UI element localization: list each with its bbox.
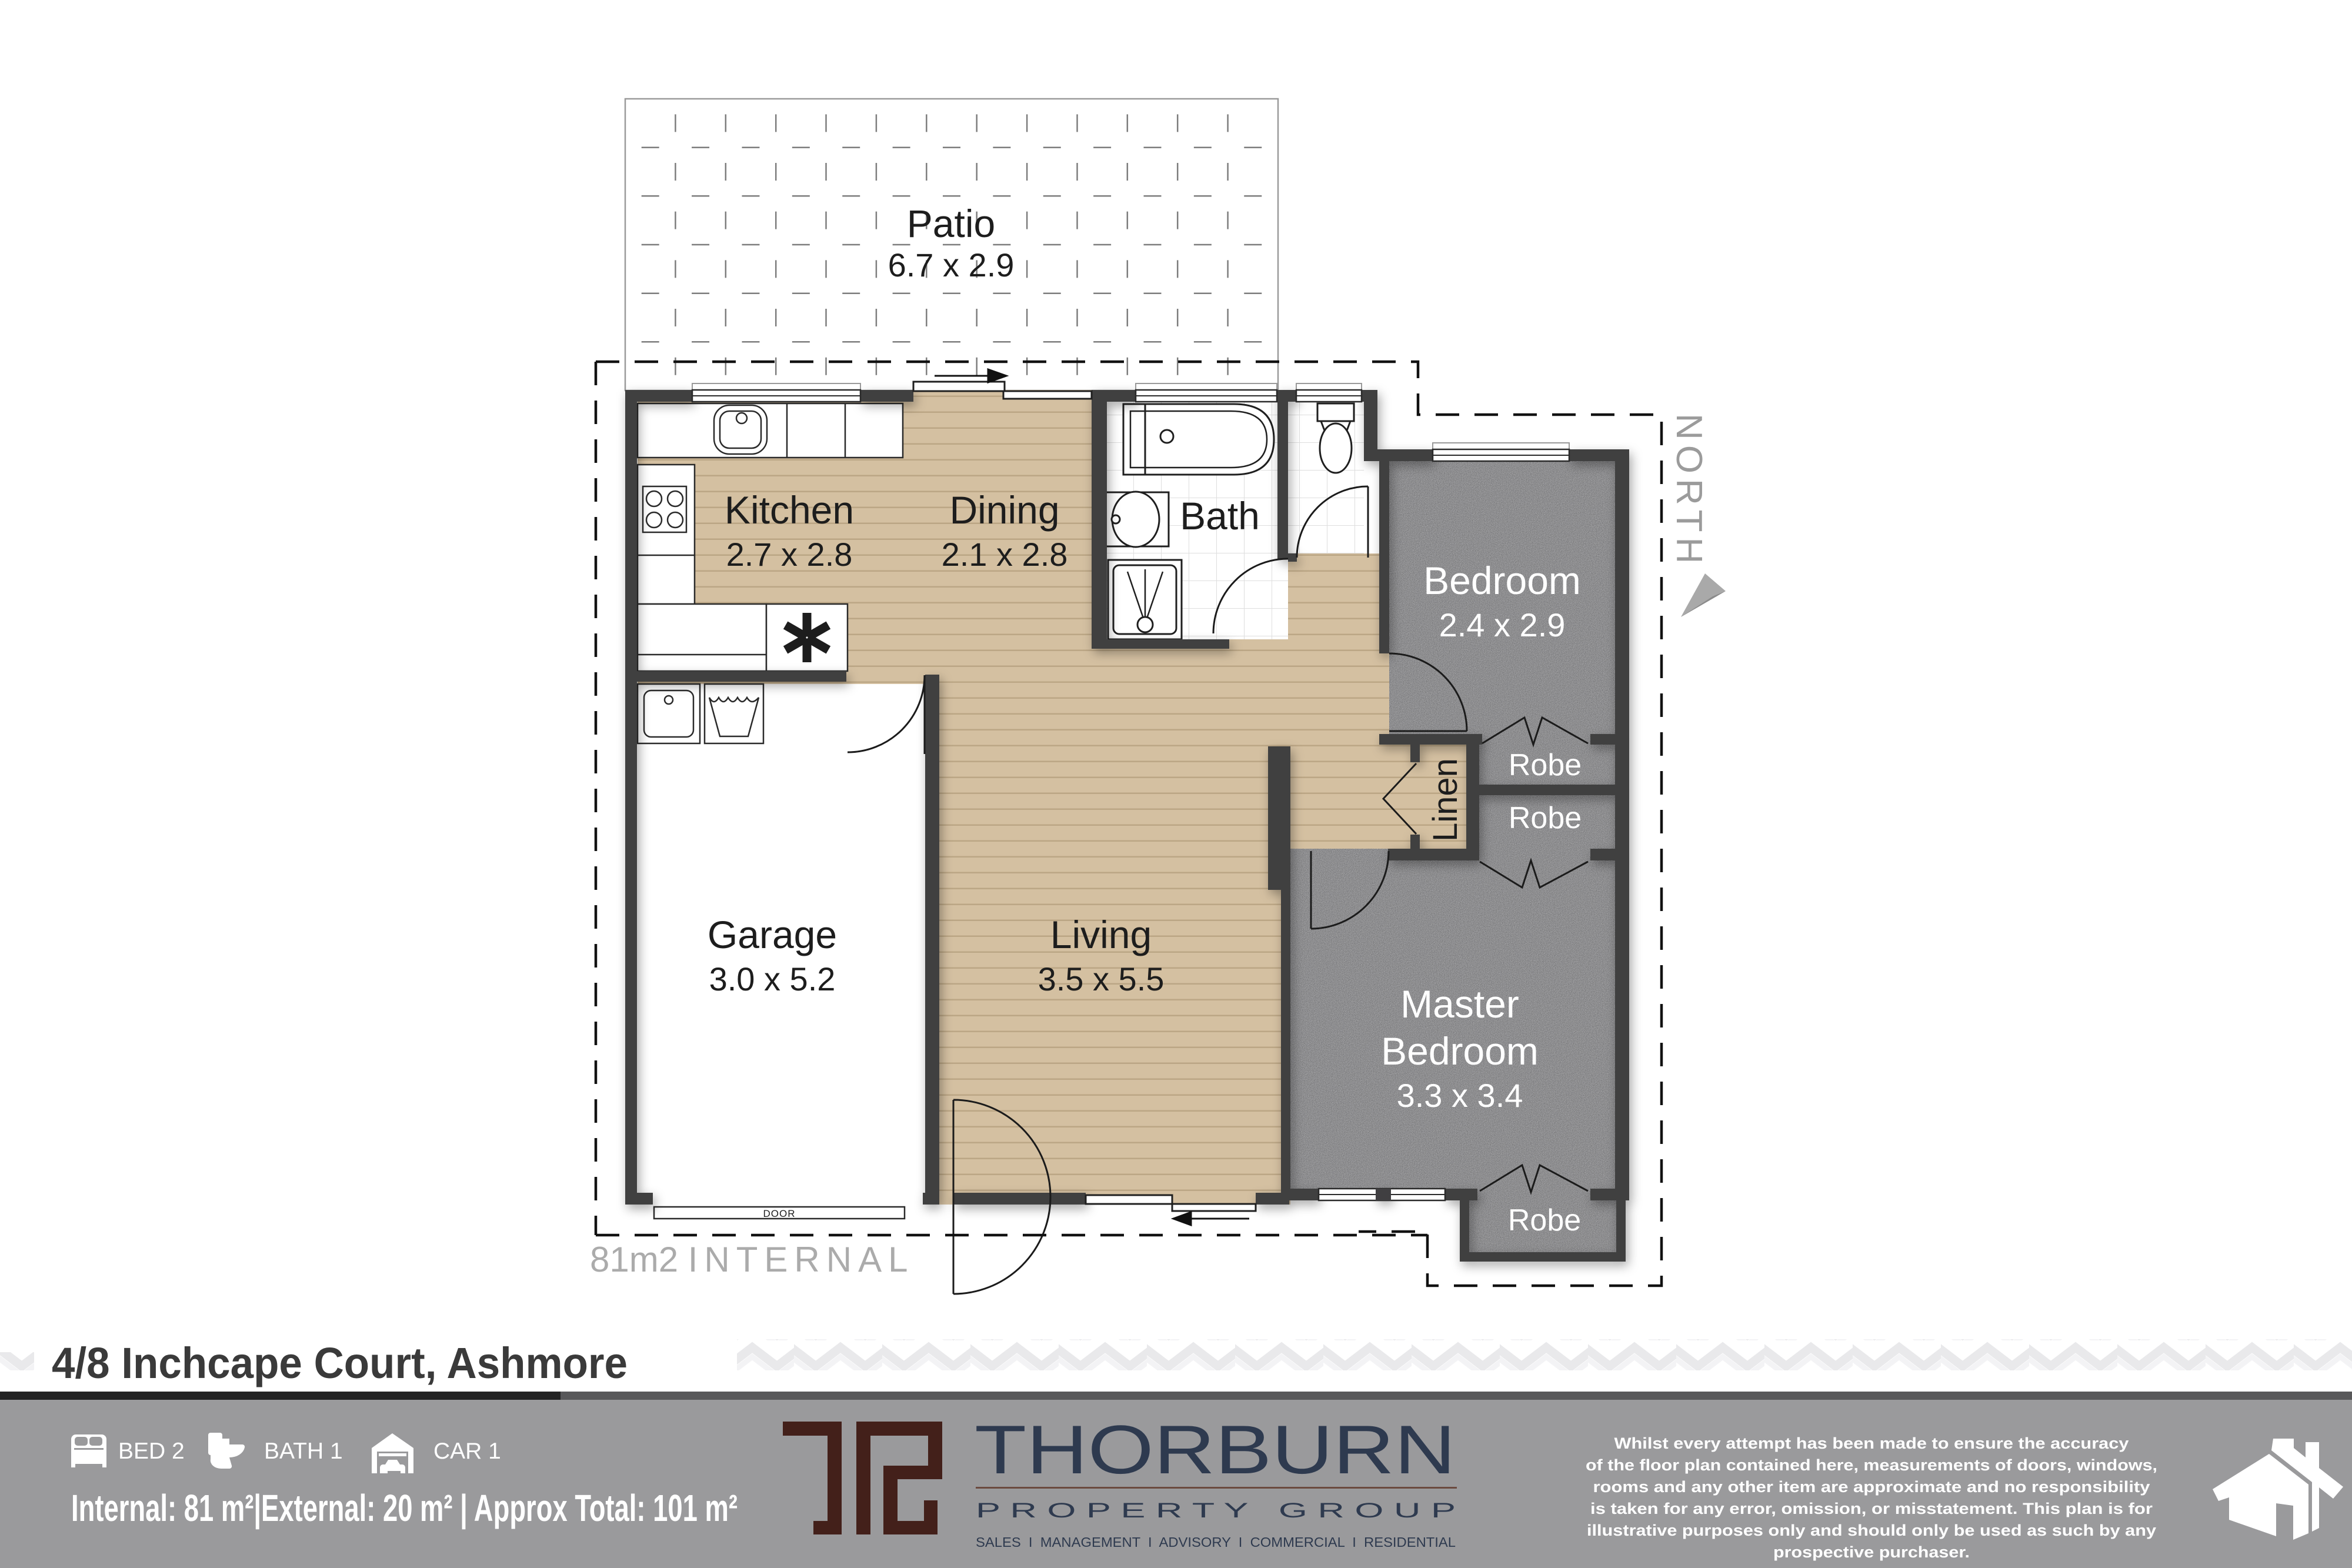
svg-text:rooms and any other item are a: rooms and any other item are approximate… — [1593, 1478, 2150, 1496]
svg-text:Linen: Linen — [1426, 758, 1464, 842]
svg-text:NORTH: NORTH — [1669, 413, 1709, 569]
svg-text:Robe: Robe — [1509, 748, 1582, 782]
svg-text:BED 2: BED 2 — [118, 1439, 185, 1464]
svg-text:THORBURN: THORBURN — [975, 1411, 1456, 1488]
svg-text:6.7 x 2.9: 6.7 x 2.9 — [888, 246, 1015, 283]
svg-text:Robe: Robe — [1509, 801, 1582, 835]
svg-text:of the floor plan contained he: of the floor plan contained here, measur… — [1586, 1456, 2157, 1474]
svg-text:3.5 x 5.5: 3.5 x 5.5 — [1038, 960, 1165, 997]
svg-text:illustrative purposes only and: illustrative purposes only and should on… — [1587, 1522, 2156, 1539]
svg-text:is taken for any error, omissi: is taken for any error, omission, or mis… — [1590, 1500, 2153, 1517]
svg-text:3.3 x 3.4: 3.3 x 3.4 — [1397, 1077, 1523, 1114]
svg-text:2.1 x 2.8: 2.1 x 2.8 — [942, 536, 1068, 573]
svg-text:Bedroom: Bedroom — [1423, 559, 1581, 602]
svg-text:Garage: Garage — [708, 913, 837, 956]
svg-text:3.0 x 5.2: 3.0 x 5.2 — [709, 960, 836, 997]
svg-text:prospective purchaser.: prospective purchaser. — [1773, 1543, 1970, 1561]
svg-text:Robe: Robe — [1508, 1203, 1581, 1237]
svg-text:Patio: Patio — [907, 202, 995, 245]
svg-text:P R O P E R T Y G R O U P: P R O P E R T Y G R O U P — [976, 1499, 1456, 1522]
svg-text:2.7 x 2.8: 2.7 x 2.8 — [726, 536, 853, 573]
svg-text:BATH 1: BATH 1 — [264, 1439, 343, 1464]
svg-text:DOOR: DOOR — [763, 1208, 796, 1219]
svg-text:SALES I MANAGEMENT I ADVIS: SALES I MANAGEMENT I ADVISORY I COMMERCI… — [976, 1534, 1456, 1550]
svg-text:2.4 x 2.9: 2.4 x 2.9 — [1439, 606, 1566, 643]
svg-text:Living: Living — [1050, 913, 1152, 956]
svg-text:81m2 INTERNAL: 81m2 INTERNAL — [590, 1240, 914, 1279]
svg-text:4/8 Inchcape Court, Ashmore: 4/8 Inchcape Court, Ashmore — [52, 1339, 628, 1387]
svg-text:Kitchen: Kitchen — [725, 488, 854, 532]
svg-text:Whilst every attempt has been: Whilst every attempt has been made to en… — [1614, 1434, 2129, 1452]
svg-text:CAR 1: CAR 1 — [433, 1439, 501, 1464]
svg-text:Master: Master — [1400, 982, 1519, 1026]
svg-text:Internal: 81 m²|External: 20 m: Internal: 81 m²|External: 20 m² | Approx… — [71, 1487, 738, 1530]
svg-text:Dining: Dining — [949, 488, 1059, 532]
svg-text:Bath: Bath — [1180, 494, 1260, 538]
svg-text:Bedroom: Bedroom — [1381, 1029, 1539, 1073]
